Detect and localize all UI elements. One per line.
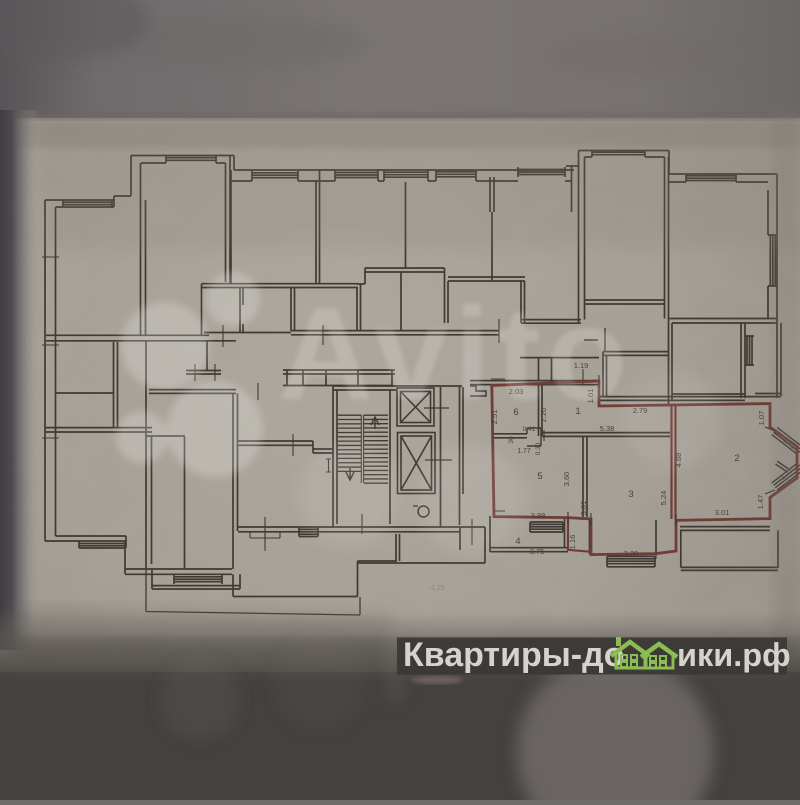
svg-text:5.24: 5.24 [659, 491, 668, 506]
svg-text:0.41: 0.41 [523, 426, 536, 433]
svg-text:0.30: 0.30 [535, 442, 542, 455]
svg-text:3.88: 3.88 [531, 511, 546, 520]
svg-text:30: 30 [508, 436, 515, 444]
svg-text:1.07: 1.07 [757, 411, 766, 426]
svg-text:3.01: 3.01 [715, 508, 730, 517]
svg-text:ики.рф: ики.рф [677, 637, 791, 673]
svg-text:3.39: 3.39 [624, 549, 639, 558]
svg-text:1.16: 1.16 [568, 535, 577, 550]
svg-text:3.60: 3.60 [562, 472, 571, 487]
svg-text:2: 2 [734, 453, 739, 464]
svg-text:1.47: 1.47 [756, 495, 765, 510]
svg-text:1.77: 1.77 [517, 448, 531, 455]
svg-text:Avito: Avito [278, 280, 633, 427]
svg-text:4: 4 [515, 536, 520, 546]
svg-text:Квартиры-до: Квартиры-до [403, 636, 624, 674]
svg-text:3.75: 3.75 [530, 547, 545, 556]
svg-text:~1.25: ~1.25 [427, 585, 445, 592]
svg-text:3: 3 [628, 489, 633, 500]
svg-text:3.01: 3.01 [579, 501, 588, 516]
svg-text:5: 5 [537, 471, 542, 482]
